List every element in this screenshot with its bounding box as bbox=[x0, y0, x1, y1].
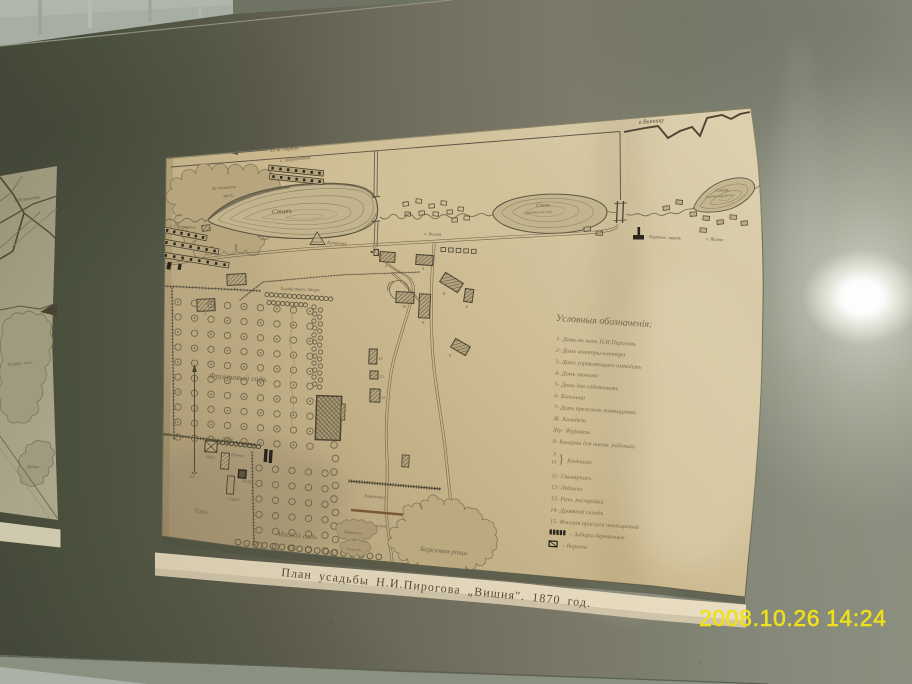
svg-text:Ставъ: Ставъ bbox=[716, 187, 730, 193]
svg-text:Ставъ: Ставъ bbox=[272, 207, 293, 216]
svg-text:Дубина: Дубина bbox=[26, 464, 39, 469]
svg-text:Сарай: Сарай bbox=[228, 496, 240, 502]
svg-text:Изба: Изба bbox=[205, 454, 215, 460]
svg-text:лѣсъ: лѣсъ bbox=[222, 194, 234, 200]
svg-text:Ю: Ю bbox=[189, 474, 195, 479]
svg-text:11: 11 bbox=[381, 395, 385, 400]
svg-text:Токъ: Токъ bbox=[194, 507, 209, 516]
svg-text:10: 10 bbox=[402, 304, 407, 309]
svg-text:12: 12 bbox=[378, 356, 383, 361]
svg-text:14:24: 14:24 bbox=[826, 605, 887, 631]
svg-text:10: 10 bbox=[551, 459, 557, 465]
svg-text:9: 9 bbox=[553, 451, 556, 457]
svg-text:с. Вишня: с. Вишня bbox=[424, 231, 442, 237]
svg-text:2008.10.26: 2008.10.26 bbox=[699, 605, 820, 631]
svg-text:Ставъ: Ставъ bbox=[536, 203, 551, 209]
svg-text:}: } bbox=[558, 451, 565, 466]
svg-text:Птичн.: Птичн. bbox=[230, 452, 245, 458]
svg-text:13: 13 bbox=[379, 374, 384, 379]
svg-text:Погр.: Погр. bbox=[241, 478, 252, 484]
